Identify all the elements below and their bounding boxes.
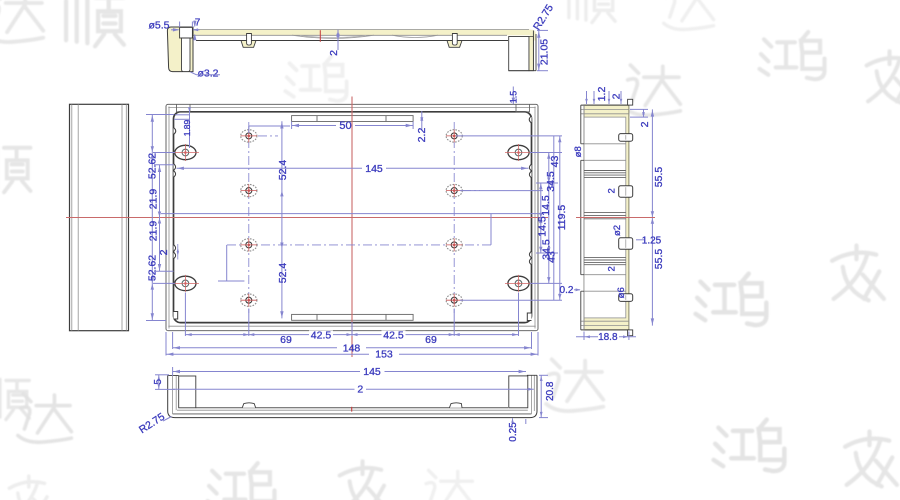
svg-text:ø8: ø8 [573,146,584,157]
svg-text:43: 43 [545,251,557,263]
svg-text:55.5: 55.5 [653,249,665,270]
svg-text:34.5: 34.5 [545,171,557,192]
svg-text:1.89: 1.89 [182,119,192,136]
svg-text:52.4: 52.4 [277,160,289,181]
svg-text:ø6: ø6 [616,287,627,298]
svg-text:55.5: 55.5 [653,167,665,188]
svg-text:42.5: 42.5 [383,329,404,341]
svg-text:145: 145 [365,163,383,175]
svg-text:145: 145 [363,366,381,378]
svg-text:18.8: 18.8 [598,332,618,343]
svg-text:52.62: 52.62 [147,255,159,281]
svg-text:1.25: 1.25 [642,235,662,246]
svg-text:2: 2 [639,121,651,127]
svg-text:2: 2 [606,266,617,271]
svg-text:5: 5 [153,379,164,385]
svg-text:119.5: 119.5 [556,205,568,231]
svg-text:2: 2 [606,188,617,193]
svg-text:148: 148 [343,342,361,354]
svg-text:2.2: 2.2 [416,128,428,143]
svg-text:2: 2 [328,50,340,56]
svg-text:2: 2 [357,384,363,396]
svg-text:2: 2 [158,249,170,255]
svg-text:21.9: 21.9 [148,221,160,242]
svg-text:21.05: 21.05 [539,39,551,65]
svg-text:69: 69 [425,334,437,346]
svg-text:ø2: ø2 [612,225,623,236]
svg-text:42.5: 42.5 [311,329,332,341]
svg-text:153: 153 [375,349,393,361]
svg-text:0.25: 0.25 [508,422,519,442]
svg-text:ø5.5: ø5.5 [148,19,169,31]
svg-text:14.5: 14.5 [540,195,552,216]
svg-text:ø3.2: ø3.2 [197,67,218,79]
svg-text:0.2: 0.2 [560,285,574,296]
svg-text:52.4: 52.4 [277,263,289,284]
svg-text:52.62: 52.62 [147,153,159,179]
svg-text:1.5: 1.5 [509,91,519,104]
svg-text:1.2: 1.2 [596,87,608,102]
svg-text:43: 43 [549,156,561,168]
svg-text:50: 50 [339,120,351,132]
svg-text:2: 2 [610,93,622,99]
svg-text:21.9: 21.9 [148,189,160,210]
svg-text:20.8: 20.8 [545,381,556,401]
svg-text:14.5: 14.5 [537,216,549,237]
svg-text:69: 69 [280,334,292,346]
